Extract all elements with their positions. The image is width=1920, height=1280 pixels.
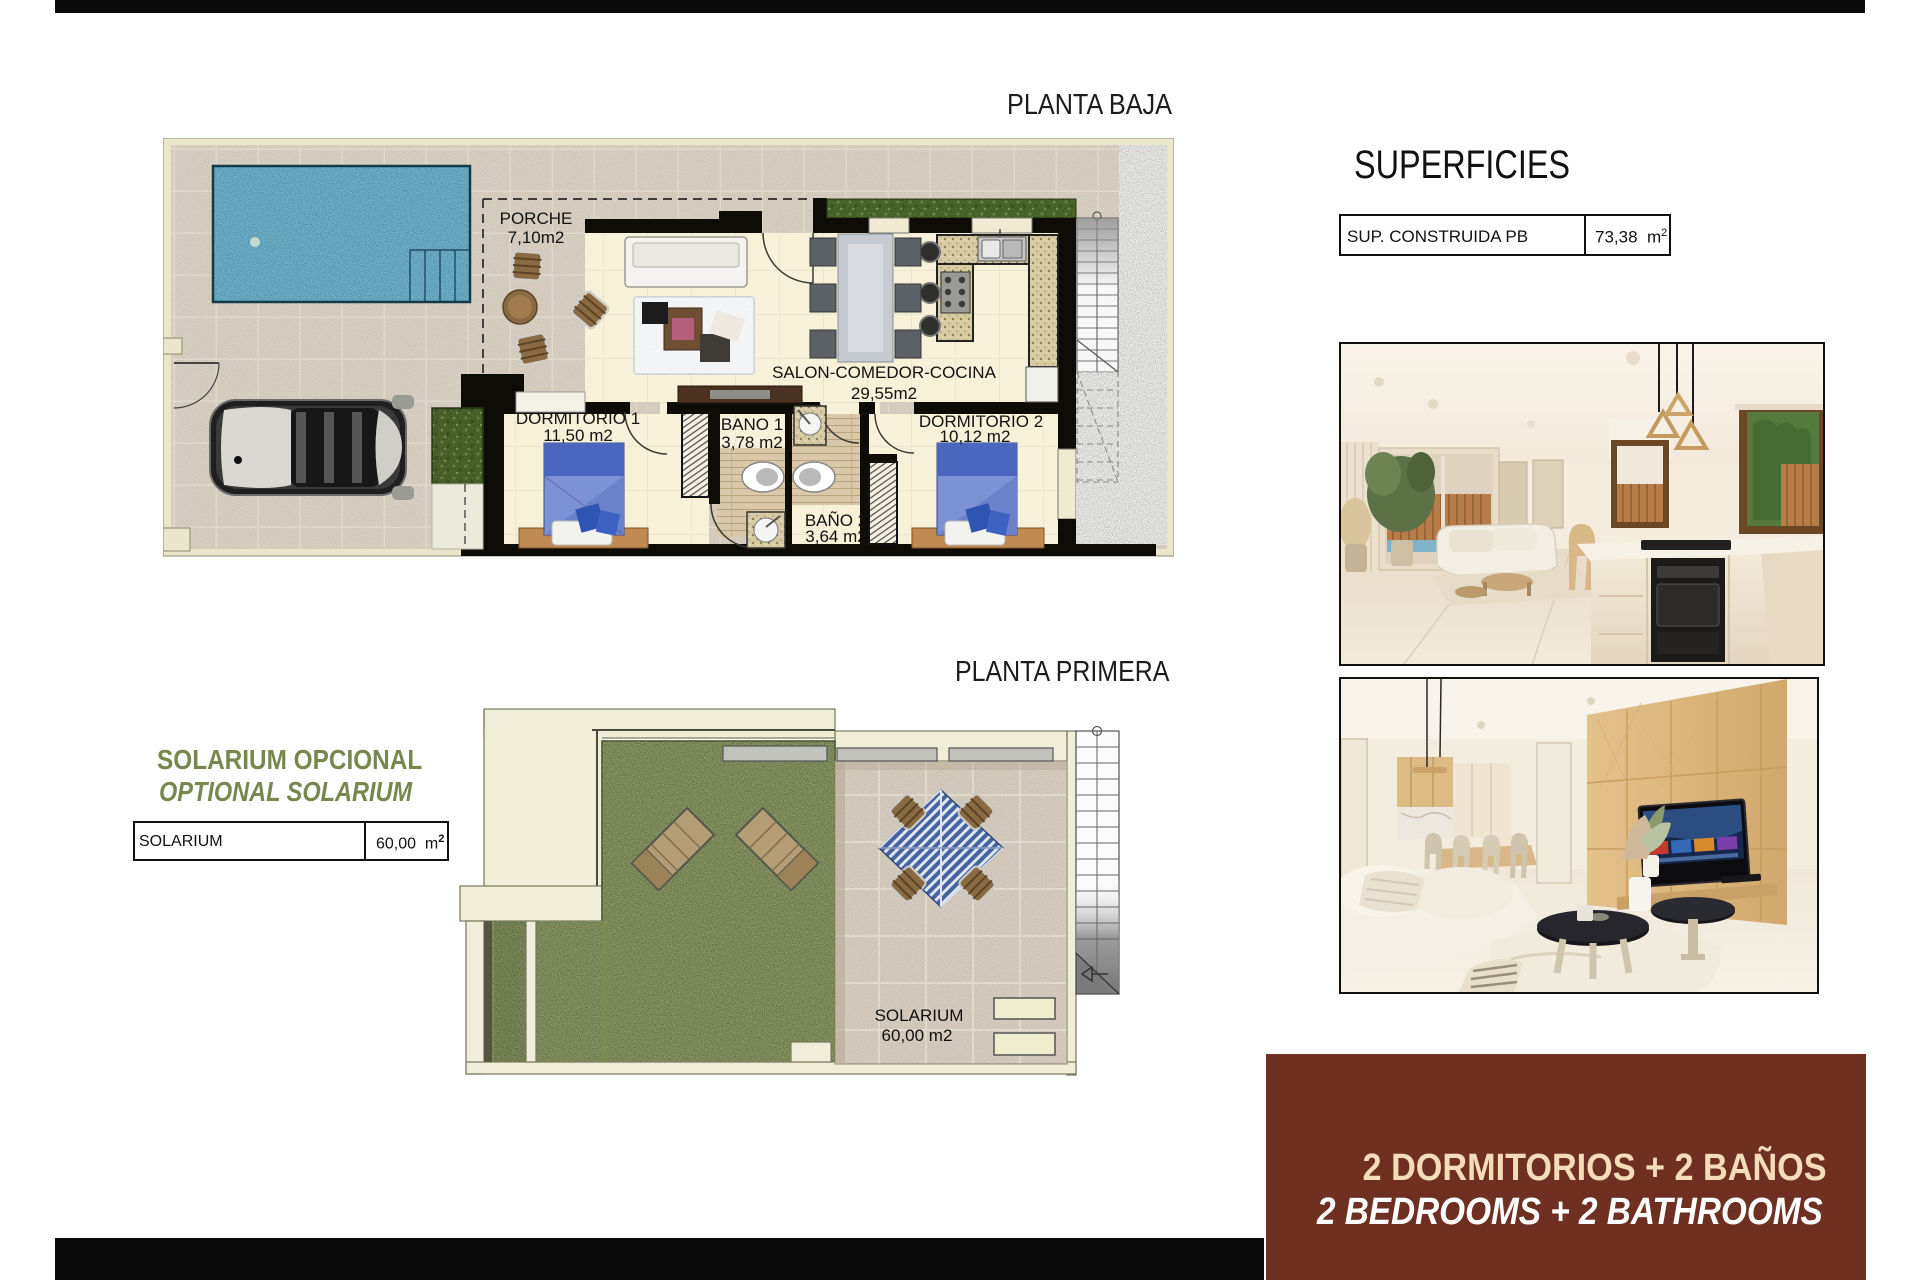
svg-text:60,00 m2: 60,00 m2 xyxy=(882,1026,953,1045)
svg-text:SALON-COMEDOR-COCINA: SALON-COMEDOR-COCINA xyxy=(772,363,997,382)
svg-text:SOLARIUM: SOLARIUM xyxy=(875,1006,964,1025)
svg-text:10,12 m2: 10,12 m2 xyxy=(940,427,1011,446)
svg-text:11,50 m2: 11,50 m2 xyxy=(543,426,613,445)
svg-text:29,55m2: 29,55m2 xyxy=(851,384,917,403)
svg-text:3,78 m2: 3,78 m2 xyxy=(721,433,782,452)
svg-text:PORCHE: PORCHE xyxy=(500,209,573,228)
svg-text:BANO 1: BANO 1 xyxy=(721,415,783,434)
svg-text:3,64 m2: 3,64 m2 xyxy=(805,527,866,546)
svg-text:7,10m2: 7,10m2 xyxy=(508,228,565,247)
